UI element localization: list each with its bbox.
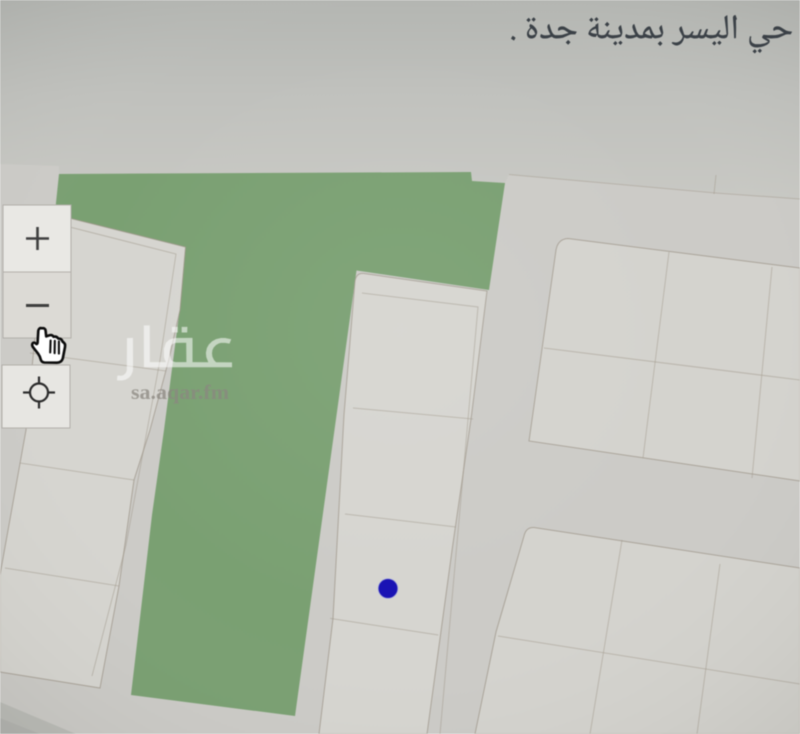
svg-text:sa.aqar.fm: sa.aqar.fm: [131, 380, 230, 404]
